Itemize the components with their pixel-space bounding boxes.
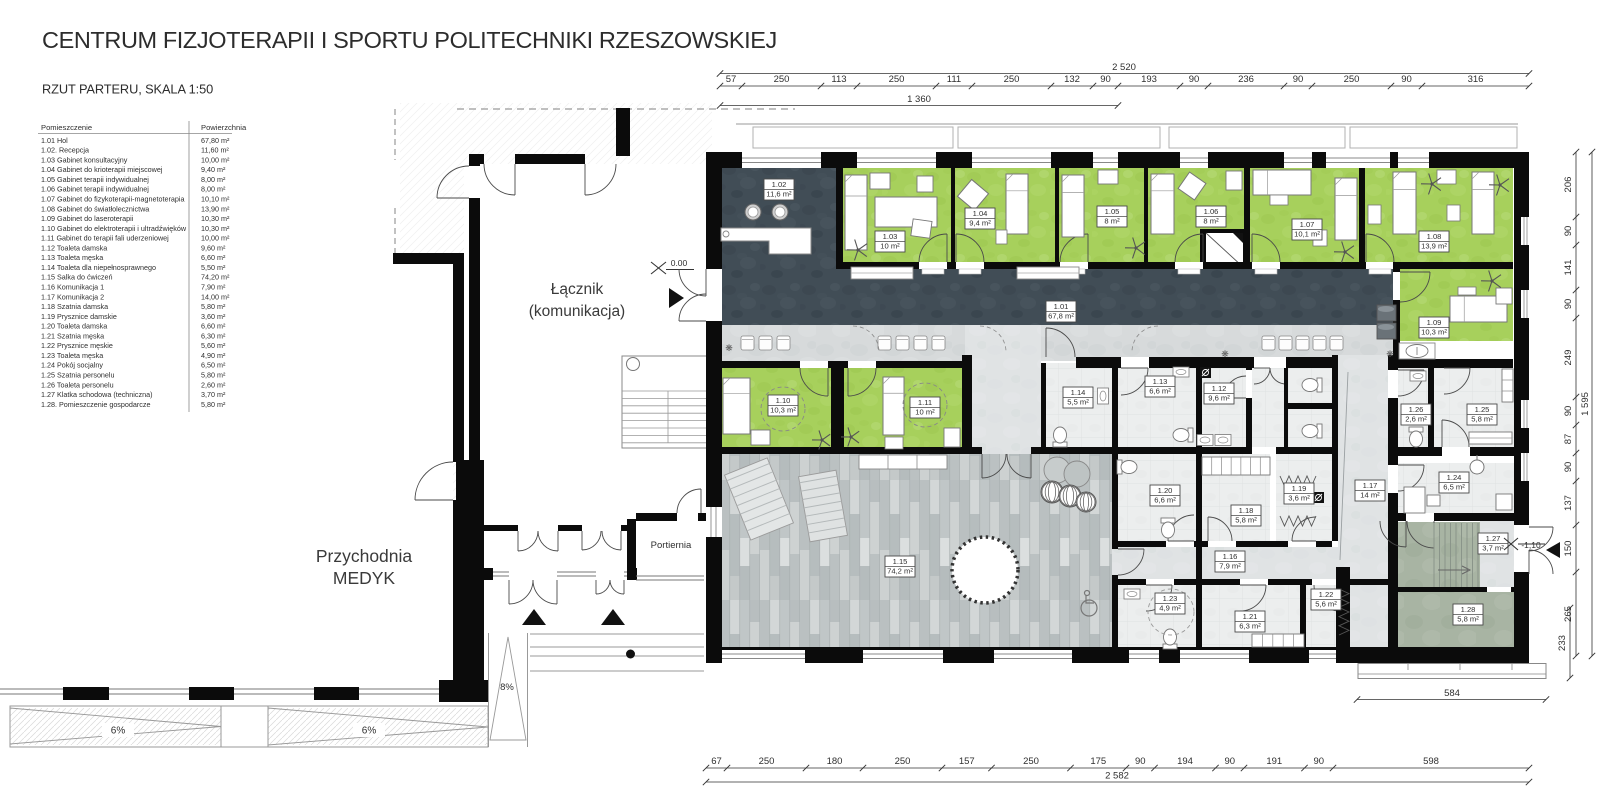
svg-text:13,90 m²: 13,90 m² [201,204,230,213]
svg-text:74,2 m²: 74,2 m² [887,567,913,576]
svg-text:74,20 m²: 74,20 m² [201,273,230,282]
svg-text:1.14 Toaleta dla niepełnospraw: 1.14 Toaleta dla niepełnosprawnego [41,263,156,272]
svg-text:6,6 m²: 6,6 m² [1154,496,1176,505]
svg-text:9,6 m²: 9,6 m² [1208,394,1230,403]
svg-text:191: 191 [1266,756,1282,767]
svg-text:10,00 m²: 10,00 m² [201,234,230,243]
svg-text:7,9 m²: 7,9 m² [1219,562,1241,571]
svg-text:2 582: 2 582 [1105,771,1129,782]
svg-text:6%: 6% [362,726,377,737]
svg-text:6,60 m²: 6,60 m² [201,253,226,262]
svg-text:67,80 m²: 67,80 m² [201,136,230,145]
svg-text:6,6 m²: 6,6 m² [1149,387,1171,396]
svg-text:1 360: 1 360 [907,94,931,105]
svg-text:90: 90 [1563,406,1574,417]
svg-text:180: 180 [827,756,843,767]
svg-text:Powierzchnia: Powierzchnia [201,123,247,132]
svg-text:250: 250 [1344,74,1360,85]
svg-text:10 m²: 10 m² [915,408,935,417]
svg-text:90: 90 [1100,74,1111,85]
svg-text:10,3 m²: 10,3 m² [1421,328,1447,337]
svg-text:14,00 m²: 14,00 m² [201,292,230,301]
svg-text:1.07 Gabinet do fizykoterapii-: 1.07 Gabinet do fizykoterapii-magnetoter… [41,194,184,203]
svg-text:1.26 Toaleta personelu: 1.26 Toaleta personelu [41,380,114,389]
svg-text:1.15: 1.15 [893,557,908,566]
svg-text:10,30 m²: 10,30 m² [201,224,230,233]
svg-text:10,00 m²: 10,00 m² [201,155,230,164]
svg-text:90: 90 [1135,756,1146,767]
svg-text:1.18: 1.18 [1239,506,1254,515]
svg-text:90: 90 [1189,74,1200,85]
svg-text:1.12: 1.12 [1212,384,1227,393]
svg-text:1.10 Gabinet do elektroterapii: 1.10 Gabinet do elektroterapii i ultradź… [41,224,187,233]
svg-text:90: 90 [1293,74,1304,85]
svg-text:175: 175 [1090,756,1106,767]
svg-text:233: 233 [1557,635,1568,651]
svg-text:1.03: 1.03 [883,232,898,241]
svg-text:1.06: 1.06 [1204,207,1219,216]
svg-text:1.27 Klatka schodowa (technicz: 1.27 Klatka schodowa (techniczna) [41,390,152,399]
svg-text:9,60 m²: 9,60 m² [201,243,226,252]
svg-text:5,8 m²: 5,8 m² [1235,516,1257,525]
svg-text:150: 150 [1563,541,1574,557]
svg-text:137: 137 [1563,495,1574,511]
svg-text:1.18 Szatnia damska: 1.18 Szatnia damska [41,302,108,311]
svg-text:1.03 Gabinet konsultacyjny: 1.03 Gabinet konsultacyjny [41,155,128,164]
svg-text:1.13 Toaleta męska: 1.13 Toaleta męska [41,253,103,262]
svg-text:5,80 m²: 5,80 m² [201,302,226,311]
svg-text:67: 67 [711,756,722,767]
svg-text:1.09: 1.09 [1427,318,1442,327]
svg-text:236: 236 [1238,74,1254,85]
svg-text:1.02. Recepcja: 1.02. Recepcja [41,146,89,155]
svg-text:1.05: 1.05 [1105,207,1120,216]
svg-text:87: 87 [1563,434,1574,445]
svg-text:3,7 m²: 3,7 m² [1482,544,1504,553]
svg-text:206: 206 [1563,177,1574,193]
svg-text:111: 111 [947,74,961,85]
svg-text:1.23: 1.23 [1163,594,1178,603]
svg-text:1.14: 1.14 [1071,388,1086,397]
svg-text:249: 249 [1563,350,1574,366]
svg-text:157: 157 [959,756,975,767]
svg-text:10,3 m²: 10,3 m² [770,406,796,415]
svg-text:90: 90 [1401,74,1412,85]
svg-text:4,90 m²: 4,90 m² [201,351,226,360]
svg-text:1.12 Toaleta damska: 1.12 Toaleta damska [41,243,107,252]
svg-text:1.22: 1.22 [1319,590,1334,599]
svg-text:5,5 m²: 5,5 m² [1067,398,1089,407]
svg-text:584: 584 [1444,688,1460,699]
svg-text:1.04 Gabinet do krioterapii mi: 1.04 Gabinet do krioterapii miejscowej [41,165,163,174]
svg-text:1.17: 1.17 [1363,481,1378,490]
svg-text:RZUT PARTERU, SKALA 1:50: RZUT PARTERU, SKALA 1:50 [42,82,213,97]
svg-text:1.28. Pomieszczenie gospodarcz: 1.28. Pomieszczenie gospodarcze [41,400,150,409]
svg-text:1.02: 1.02 [772,180,787,189]
svg-text:6,60 m²: 6,60 m² [201,322,226,331]
svg-text:0.00: 0.00 [671,258,688,268]
svg-text:6,5 m²: 6,5 m² [1443,483,1465,492]
svg-text:1.08: 1.08 [1427,232,1442,241]
svg-text:1.04: 1.04 [973,209,988,218]
svg-text:5,8 m²: 5,8 m² [1471,415,1493,424]
svg-text:14 m²: 14 m² [1360,491,1380,500]
svg-text:1.20: 1.20 [1158,486,1173,495]
svg-text:5,60 m²: 5,60 m² [201,341,226,350]
svg-text:6,3 m²: 6,3 m² [1239,622,1261,631]
svg-text:1.01: 1.01 [1054,302,1069,311]
svg-text:250: 250 [889,74,905,85]
svg-text:250: 250 [1023,756,1039,767]
svg-text:7,90 m²: 7,90 m² [201,283,226,292]
svg-text:5,8 m²: 5,8 m² [1457,615,1479,624]
svg-text:2,60 m²: 2,60 m² [201,380,226,389]
svg-text:250: 250 [1004,74,1020,85]
svg-text:316: 316 [1468,74,1484,85]
svg-text:Pomieszczenie: Pomieszczenie [41,123,92,132]
svg-text:3,60 m²: 3,60 m² [201,312,226,321]
svg-text:Portiernia: Portiernia [651,540,692,551]
svg-text:132: 132 [1064,74,1080,85]
svg-text:1.25: 1.25 [1475,405,1490,414]
svg-text:5,80 m²: 5,80 m² [201,400,226,409]
svg-text:8%: 8% [500,682,514,693]
svg-text:❋: ❋ [1221,349,1229,359]
svg-text:(komunikacja): (komunikacja) [529,303,625,320]
svg-text:1.11 Gabinet do terapii fali u: 1.11 Gabinet do terapii fali uderzeniowe… [41,234,169,243]
svg-text:1.24: 1.24 [1447,473,1462,482]
svg-text:10 m²: 10 m² [880,242,900,251]
svg-text:MEDYK: MEDYK [333,568,396,588]
svg-text:8 m²: 8 m² [1104,217,1120,226]
svg-text:1.28: 1.28 [1461,605,1476,614]
svg-text:1.05 Gabinet terapii indywidua: 1.05 Gabinet terapii indywidualnej [41,175,149,184]
svg-text:265: 265 [1563,606,1574,622]
svg-text:1.23 Toaleta męska: 1.23 Toaleta męska [41,351,103,360]
svg-text:8,00 m²: 8,00 m² [201,175,226,184]
svg-text:1.01 Hol: 1.01 Hol [41,136,68,145]
svg-text:1.19: 1.19 [1292,484,1307,493]
svg-text:1.15 Salka do ćwiczeń: 1.15 Salka do ćwiczeń [41,273,113,282]
svg-text:10,10 m²: 10,10 m² [201,194,230,203]
svg-text:67,8 m²: 67,8 m² [1048,312,1074,321]
svg-text:3,6 m²: 3,6 m² [1288,494,1310,503]
svg-text:90: 90 [1563,226,1574,237]
svg-text:193: 193 [1141,74,1157,85]
svg-text:1.10: 1.10 [776,396,791,405]
svg-text:2,6 m²: 2,6 m² [1405,415,1427,424]
svg-text:1.21 Szatnia męska: 1.21 Szatnia męska [41,331,104,340]
svg-text:250: 250 [759,756,775,767]
svg-text:57: 57 [726,74,737,85]
svg-text:250: 250 [895,756,911,767]
svg-text:2 520: 2 520 [1112,62,1136,73]
svg-text:1.22 Prysznice męskie: 1.22 Prysznice męskie [41,341,113,350]
svg-text:90: 90 [1224,756,1235,767]
svg-text:❋: ❋ [725,343,733,353]
svg-text:1 595: 1 595 [1580,392,1591,416]
svg-text:141: 141 [1563,260,1574,276]
svg-text:9,4 m²: 9,4 m² [969,219,991,228]
svg-text:1.17 Komunikacja 2: 1.17 Komunikacja 2 [41,292,104,301]
svg-text:598: 598 [1423,756,1439,767]
svg-text:1.16 Komunikacja 1: 1.16 Komunikacja 1 [41,283,104,292]
svg-text:9,40 m²: 9,40 m² [201,165,226,174]
svg-text:90: 90 [1563,462,1574,473]
svg-text:1.07: 1.07 [1300,220,1315,229]
svg-text:Przychodnia: Przychodnia [316,546,413,566]
svg-text:11,60 m²: 11,60 m² [201,146,229,155]
svg-text:113: 113 [831,74,846,85]
svg-text:1.25 Szatnia personelu: 1.25 Szatnia personelu [41,371,115,380]
svg-text:CENTRUM FIZJOTERAPII I SPORTU: CENTRUM FIZJOTERAPII I SPORTU POLITECHNI… [42,27,777,53]
svg-text:250: 250 [774,74,790,85]
svg-text:8,00 m²: 8,00 m² [201,185,226,194]
svg-text:5,50 m²: 5,50 m² [201,263,226,272]
svg-text:11,6 m²: 11,6 m² [766,190,792,199]
svg-text:1.09 Gabinet do laseroterapii: 1.09 Gabinet do laseroterapii [41,214,134,223]
svg-text:1.21: 1.21 [1243,612,1258,621]
svg-text:1.19 Prysznice damskie: 1.19 Prysznice damskie [41,312,117,321]
svg-text:1.16: 1.16 [1223,552,1238,561]
svg-text:194: 194 [1177,756,1193,767]
svg-text:-1,10: -1,10 [1521,540,1541,550]
svg-text:1.26: 1.26 [1409,405,1424,414]
svg-text:1.13: 1.13 [1153,377,1168,386]
svg-text:6,30 m²: 6,30 m² [201,331,226,340]
svg-text:10,1 m²: 10,1 m² [1294,230,1320,239]
svg-text:❋: ❋ [1386,349,1394,359]
svg-text:1.27: 1.27 [1486,534,1501,543]
svg-text:1.20 Toaleta damska: 1.20 Toaleta damska [41,322,107,331]
svg-text:1.11: 1.11 [918,398,932,407]
svg-text:3,70 m²: 3,70 m² [201,390,226,399]
svg-text:10,30 m²: 10,30 m² [201,214,230,223]
svg-text:5,80 m²: 5,80 m² [201,371,226,380]
svg-text:13,9 m²: 13,9 m² [1421,242,1447,251]
svg-text:4,9 m²: 4,9 m² [1159,604,1181,613]
svg-text:90: 90 [1313,756,1324,767]
svg-text:1.08 Gabinet do światłolecznic: 1.08 Gabinet do światłolecznictwa [41,204,149,213]
svg-text:1.06 Gabinet terapii indywidua: 1.06 Gabinet terapii indywidualnej [41,185,149,194]
svg-text:6,50 m²: 6,50 m² [201,361,226,370]
svg-text:6%: 6% [111,726,126,737]
svg-text:90: 90 [1563,299,1574,310]
svg-text:5,6 m²: 5,6 m² [1315,600,1337,609]
svg-text:1.24 Pokój socjalny: 1.24 Pokój socjalny [41,361,103,370]
svg-text:8 m²: 8 m² [1203,217,1219,226]
svg-text:Łącznik: Łącznik [551,281,604,298]
